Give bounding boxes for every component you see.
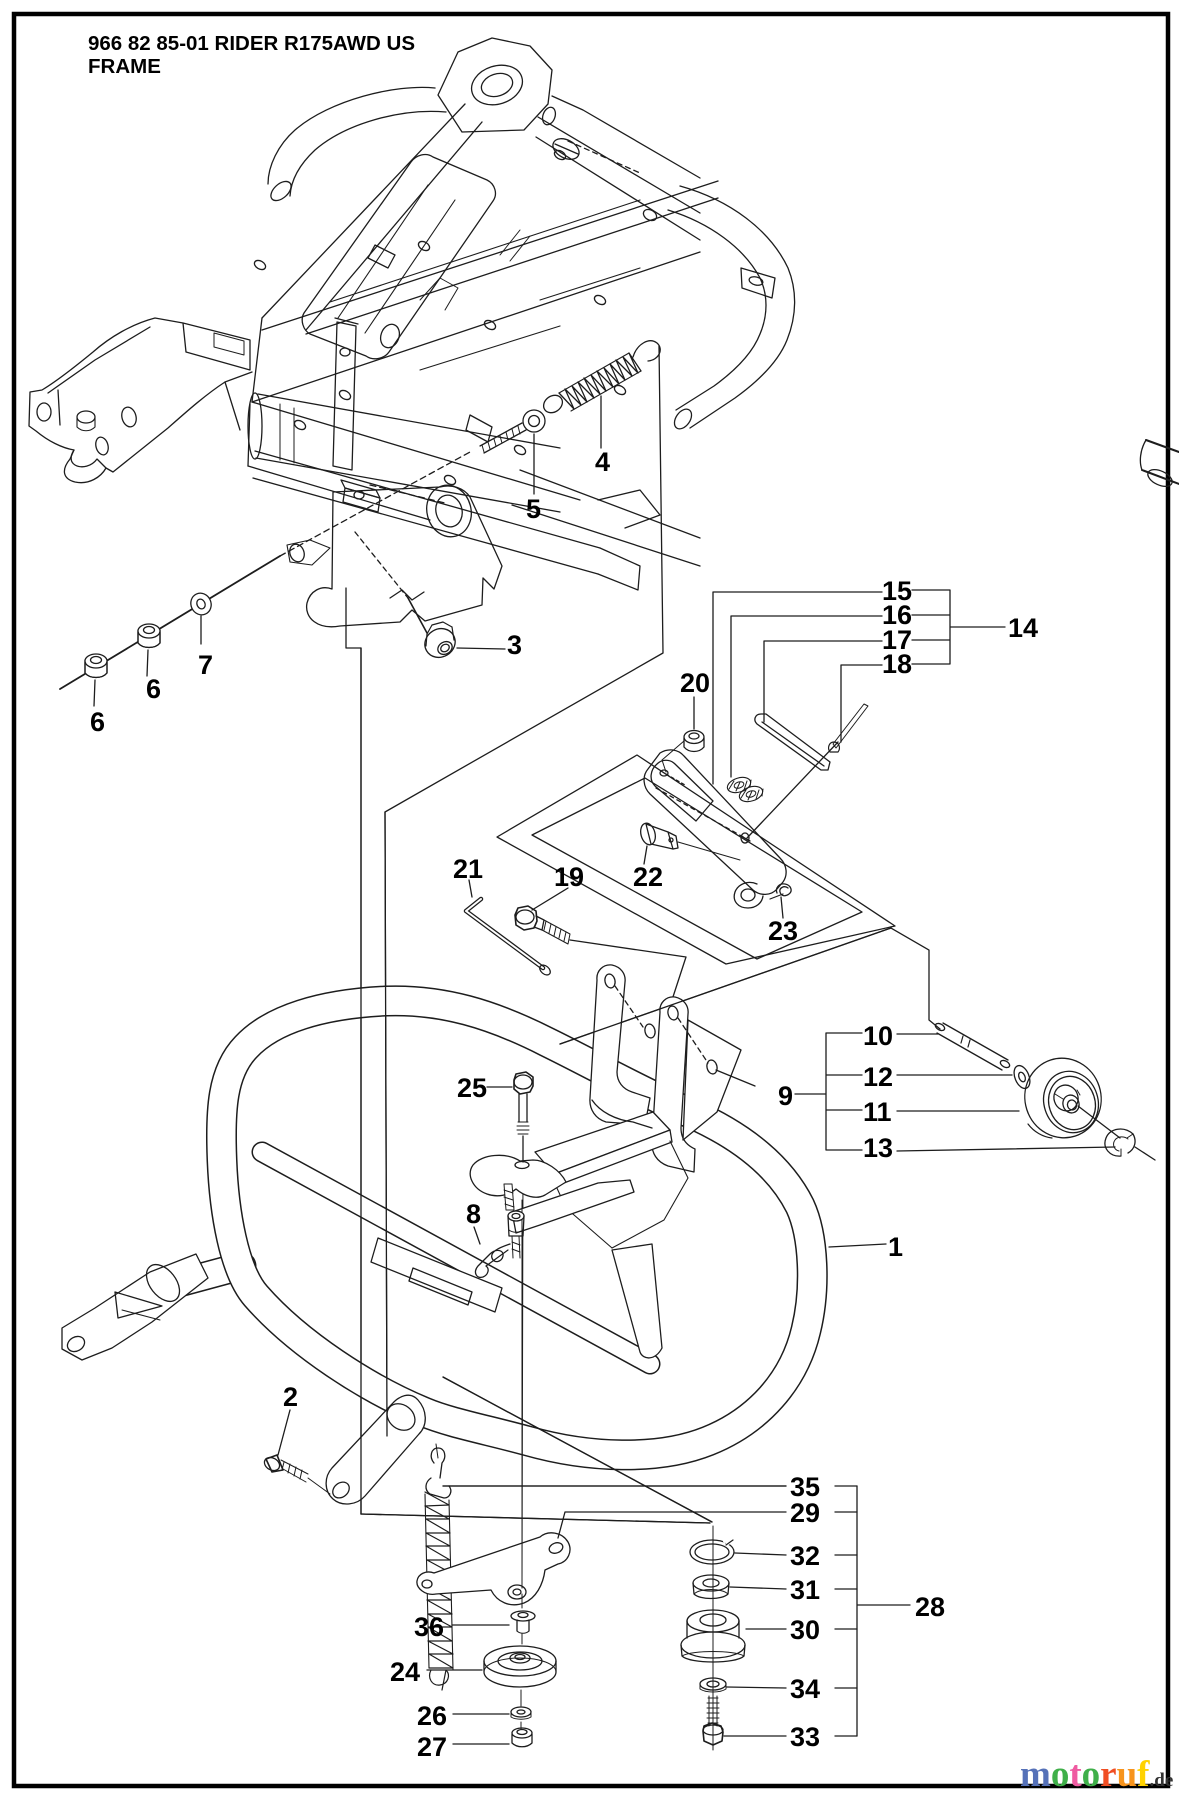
svg-text:10: 10: [863, 1021, 893, 1051]
svg-text:28: 28: [915, 1592, 945, 1622]
svg-text:14: 14: [1008, 613, 1038, 643]
svg-text:6: 6: [90, 707, 105, 737]
svg-text:31: 31: [790, 1575, 820, 1605]
svg-text:22: 22: [633, 862, 663, 892]
svg-text:26: 26: [417, 1701, 447, 1731]
svg-text:24: 24: [390, 1657, 420, 1687]
svg-text:27: 27: [417, 1732, 447, 1762]
svg-text:9: 9: [778, 1081, 793, 1111]
svg-text:4: 4: [595, 447, 610, 477]
svg-text:36: 36: [414, 1612, 444, 1642]
svg-text:18: 18: [882, 649, 912, 679]
svg-text:23: 23: [768, 916, 798, 946]
svg-text:30: 30: [790, 1615, 820, 1645]
svg-text:19: 19: [554, 862, 584, 892]
svg-text:12: 12: [863, 1062, 893, 1092]
svg-text:6: 6: [146, 674, 161, 704]
svg-text:11: 11: [863, 1097, 892, 1127]
svg-text:25: 25: [457, 1073, 487, 1103]
svg-text:34: 34: [790, 1674, 820, 1704]
svg-text:20: 20: [680, 668, 710, 698]
svg-text:29: 29: [790, 1498, 820, 1528]
svg-text:32: 32: [790, 1541, 820, 1571]
svg-text:21: 21: [453, 854, 483, 884]
svg-text:1: 1: [888, 1232, 903, 1262]
svg-text:FRAME: FRAME: [88, 55, 161, 78]
svg-text:2: 2: [283, 1382, 298, 1412]
svg-text:7: 7: [198, 650, 213, 680]
svg-text:8: 8: [466, 1199, 481, 1229]
svg-text:3: 3: [507, 630, 522, 660]
svg-text:966 82 85-01 RIDER R175AWD US: 966 82 85-01 RIDER R175AWD US: [88, 32, 415, 55]
svg-text:13: 13: [863, 1133, 893, 1163]
svg-text:5: 5: [526, 494, 541, 524]
svg-text:33: 33: [790, 1722, 820, 1752]
